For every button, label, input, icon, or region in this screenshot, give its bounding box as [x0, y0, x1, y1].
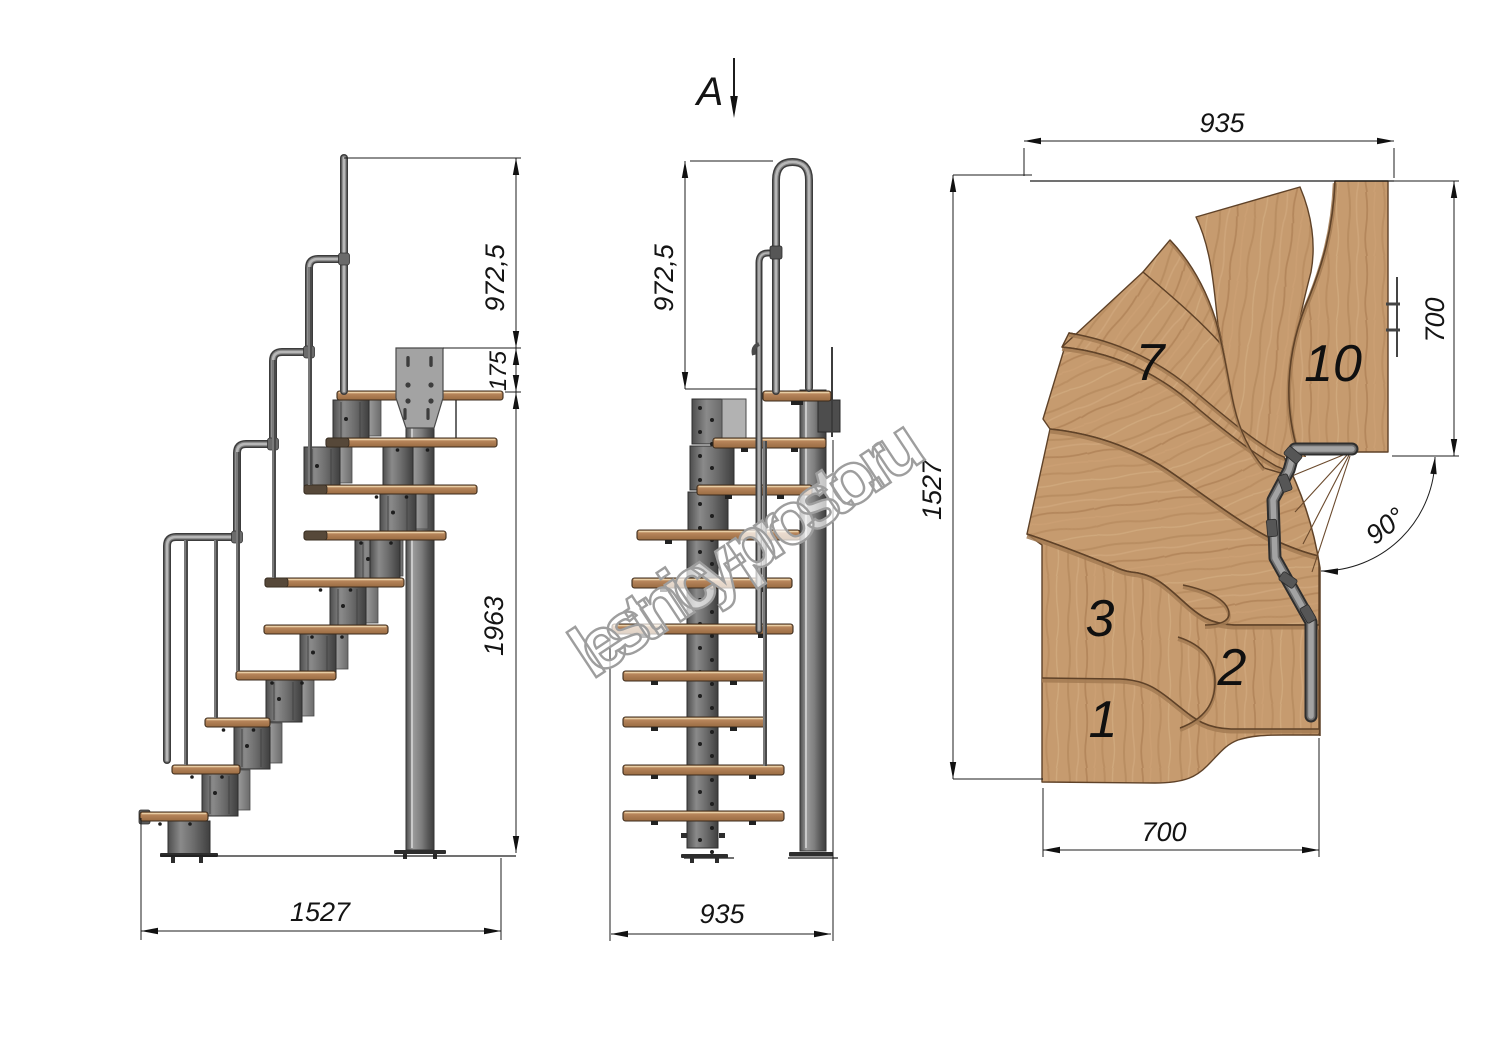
svg-text:700: 700	[1420, 297, 1450, 342]
svg-text:972,5: 972,5	[480, 243, 510, 312]
svg-text:2: 2	[1217, 639, 1247, 697]
svg-text:A: A	[695, 70, 724, 114]
svg-text:3: 3	[1086, 590, 1115, 648]
svg-text:700: 700	[1141, 817, 1186, 847]
svg-text:1: 1	[1089, 691, 1118, 749]
svg-text:1963: 1963	[479, 596, 509, 656]
svg-text:7: 7	[1136, 334, 1167, 392]
svg-text:1527: 1527	[290, 897, 351, 927]
svg-text:935: 935	[699, 899, 745, 929]
svg-text:175: 175	[485, 350, 512, 391]
svg-text:972,5: 972,5	[649, 243, 679, 312]
svg-text:935: 935	[1199, 108, 1245, 138]
svg-text:10: 10	[1304, 335, 1362, 393]
svg-text:1527: 1527	[917, 459, 947, 520]
